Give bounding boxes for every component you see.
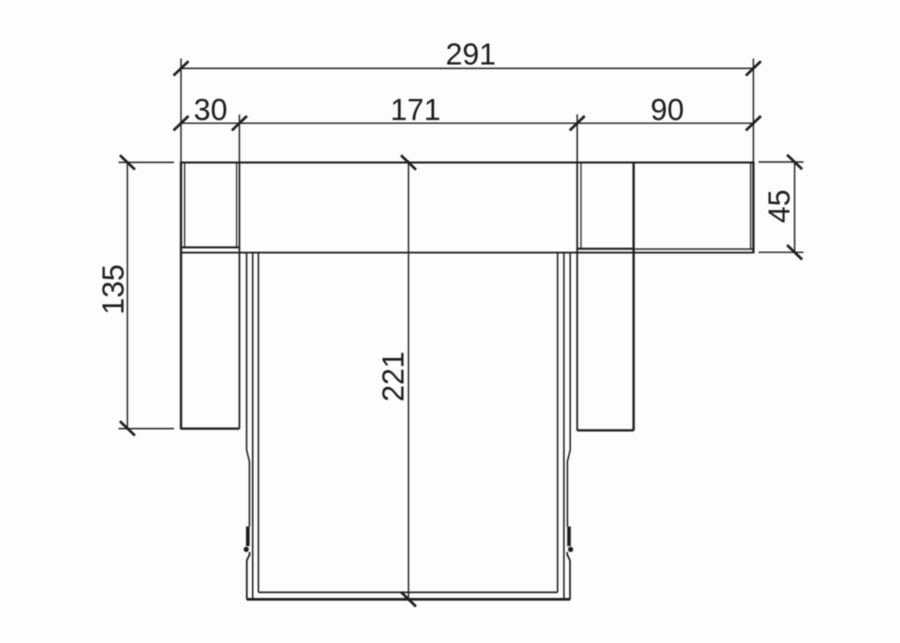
svg-text:90: 90 — [651, 94, 685, 127]
svg-text:221: 221 — [377, 351, 410, 401]
svg-text:171: 171 — [390, 94, 440, 127]
svg-text:291: 291 — [446, 39, 496, 72]
svg-text:45: 45 — [764, 190, 797, 224]
svg-text:135: 135 — [97, 264, 130, 314]
svg-text:30: 30 — [194, 94, 228, 127]
